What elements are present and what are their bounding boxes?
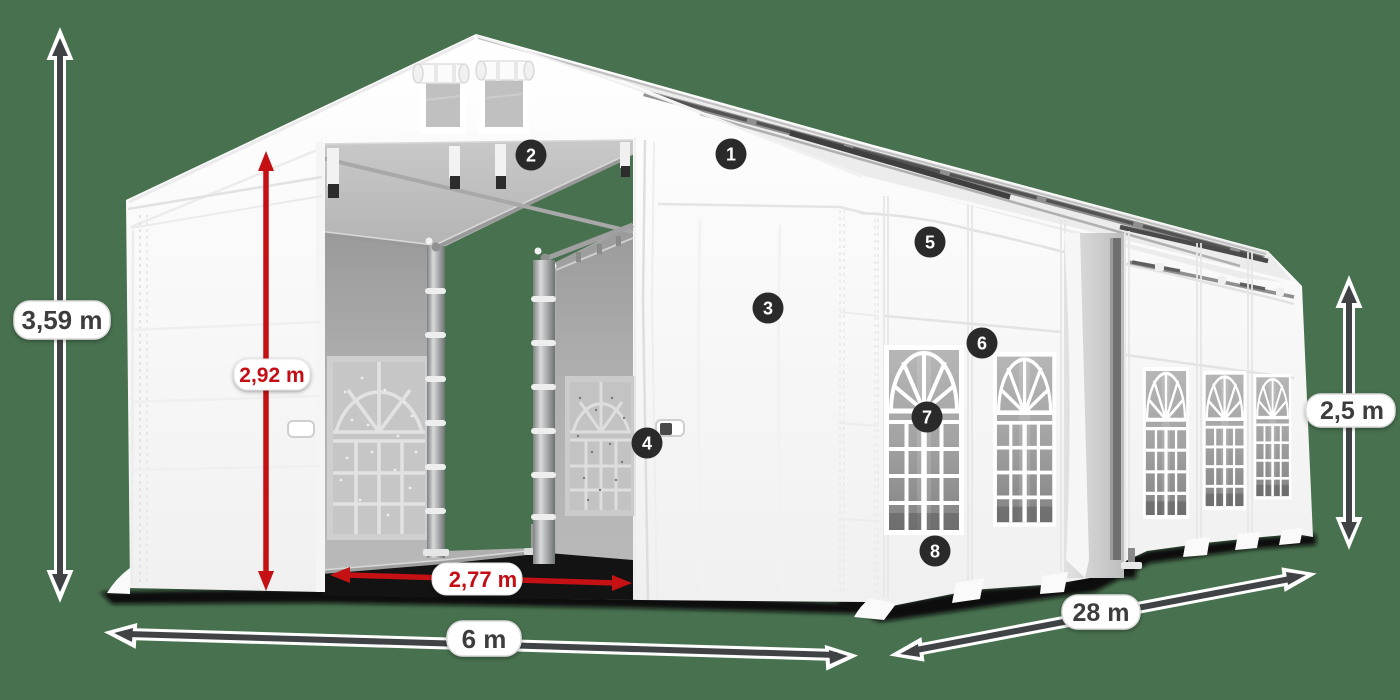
svg-text:2: 2 bbox=[526, 146, 536, 166]
svg-text:2,92 m: 2,92 m bbox=[239, 364, 304, 387]
svg-text:4: 4 bbox=[642, 434, 652, 454]
svg-text:6: 6 bbox=[977, 334, 987, 354]
svg-text:2,77 m: 2,77 m bbox=[449, 567, 518, 592]
svg-text:5: 5 bbox=[925, 233, 935, 253]
svg-text:7: 7 bbox=[922, 408, 932, 428]
svg-text:1: 1 bbox=[726, 145, 736, 165]
svg-text:3: 3 bbox=[763, 299, 773, 319]
svg-text:2,5 m: 2,5 m bbox=[1320, 397, 1384, 425]
svg-text:6 m: 6 m bbox=[462, 624, 507, 654]
svg-text:8: 8 bbox=[930, 542, 940, 562]
svg-text:3,59 m: 3,59 m bbox=[22, 305, 103, 335]
svg-text:28 m: 28 m bbox=[1073, 599, 1130, 627]
